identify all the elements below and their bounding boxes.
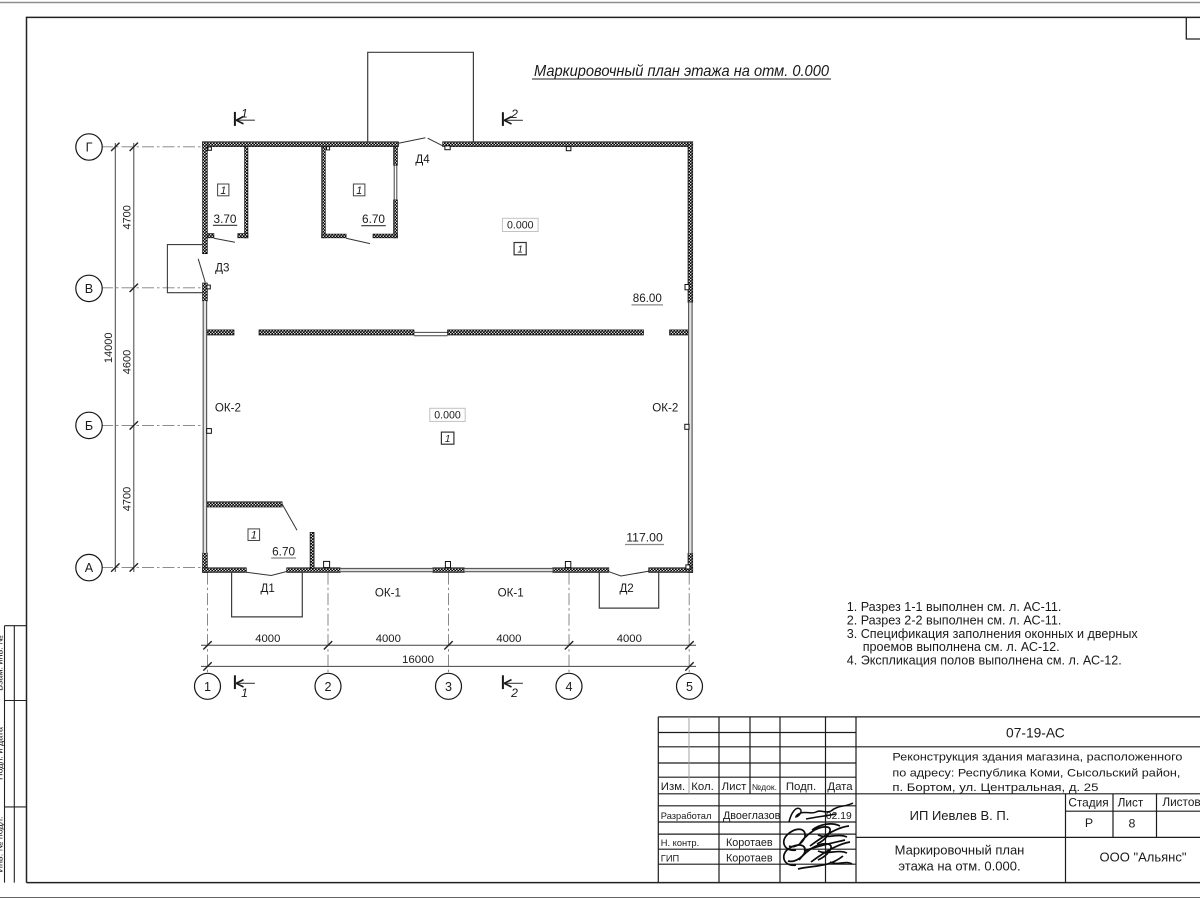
svg-text:2: 2 — [324, 680, 331, 694]
svg-text:ИП Иевлев В. П.: ИП Иевлев В. П. — [910, 808, 1010, 823]
svg-text:1: 1 — [251, 530, 257, 542]
svg-text:Лист: Лист — [1118, 796, 1144, 810]
svg-text:5: 5 — [686, 680, 693, 694]
svg-text:4000: 4000 — [496, 633, 521, 645]
svg-text:4700: 4700 — [121, 487, 133, 511]
svg-text:2: 2 — [510, 686, 518, 700]
svg-text:Взам. инв. №: Взам. инв. № — [0, 635, 4, 691]
svg-text:8: 8 — [1129, 816, 1136, 830]
svg-text:Реконструкция здания магазина,: Реконструкция здания магазина, расположе… — [892, 751, 1182, 763]
svg-text:1: 1 — [517, 245, 523, 256]
svg-text:86.00: 86.00 — [633, 291, 662, 305]
svg-text:Коротаев: Коротаев — [726, 837, 773, 849]
svg-text:Инв. № подл.: Инв. № подл. — [0, 816, 4, 872]
svg-text:1: 1 — [220, 185, 226, 197]
svg-text:16000: 16000 — [402, 654, 434, 666]
svg-text:4000: 4000 — [617, 633, 642, 645]
svg-text:3: 3 — [445, 680, 452, 694]
svg-text:ОК-1: ОК-1 — [498, 586, 524, 599]
svg-text:14000: 14000 — [103, 333, 115, 364]
svg-text:этажа на отм. 0.000.: этажа на отм. 0.000. — [898, 859, 1020, 874]
svg-text:ОК-1: ОК-1 — [375, 586, 401, 599]
svg-text:Лист: Лист — [722, 781, 748, 793]
svg-text:А: А — [85, 561, 94, 575]
svg-text:6.70: 6.70 — [272, 545, 295, 559]
svg-text:Кол.: Кол. — [691, 781, 714, 793]
svg-text:1: 1 — [204, 680, 211, 694]
svg-text:4000: 4000 — [255, 633, 280, 645]
svg-text:ОК-2: ОК-2 — [652, 402, 678, 415]
svg-text:2. Разрез 2-2 выполнен см. л.: 2. Разрез 2-2 выполнен см. л. АС-11. — [847, 614, 1062, 628]
svg-text:07-19-АС: 07-19-АС — [1006, 725, 1065, 740]
svg-text:ООО "Альянс": ООО "Альянс" — [1100, 850, 1187, 865]
svg-text:Стадия: Стадия — [1068, 796, 1108, 810]
svg-text:4700: 4700 — [121, 205, 133, 229]
svg-text:Разработал: Разработал — [661, 811, 712, 821]
svg-text:0.000: 0.000 — [507, 220, 534, 232]
svg-text:№док.: №док. — [752, 782, 777, 792]
svg-text:4: 4 — [565, 680, 572, 694]
svg-text:Д1: Д1 — [261, 582, 275, 595]
svg-text:Листов: Листов — [1162, 795, 1200, 809]
svg-text:2: 2 — [510, 107, 518, 121]
svg-text:4000: 4000 — [376, 633, 401, 645]
svg-text:1: 1 — [445, 434, 451, 445]
svg-text:п. Бортом, ул. Центральная, д.: п. Бортом, ул. Центральная, д. 25 — [892, 782, 1098, 794]
svg-text:по адресу: Республика Коми, Сы: по адресу: Республика Коми, Сысольский р… — [892, 767, 1180, 779]
svg-text:Б: Б — [85, 419, 93, 433]
svg-text:Г: Г — [86, 141, 93, 155]
svg-text:Д3: Д3 — [215, 261, 229, 274]
svg-text:Подп.: Подп. — [786, 781, 816, 793]
svg-text:4. Экспликация полов выполнена: 4. Экспликация полов выполнена см. л. АС… — [847, 654, 1122, 668]
svg-text:117.00: 117.00 — [626, 531, 663, 545]
svg-text:проемов выполнена см. л. АС-12: проемов выполнена см. л. АС-12. — [863, 640, 1060, 654]
svg-text:1: 1 — [241, 107, 248, 121]
svg-text:6.70: 6.70 — [362, 212, 385, 226]
svg-text:Д2: Д2 — [619, 582, 633, 595]
svg-text:Маркировочный план этажа на от: Маркировочный план этажа на отм. 0.000 — [534, 63, 829, 80]
svg-text:3.70: 3.70 — [214, 212, 237, 226]
svg-text:02.19: 02.19 — [826, 811, 852, 822]
svg-text:Н. контр.: Н. контр. — [661, 838, 699, 848]
svg-text:ОК-2: ОК-2 — [215, 402, 241, 415]
svg-text:Подп. и дата: Подп. и дата — [0, 727, 4, 780]
svg-text:Двоеглазов: Двоеглазов — [723, 810, 781, 822]
svg-text:0.000: 0.000 — [434, 410, 461, 422]
svg-text:ГИП: ГИП — [661, 854, 679, 864]
svg-text:Дата: Дата — [827, 781, 853, 793]
svg-text:1. Разрез 1-1 выполнен см. л.: 1. Разрез 1-1 выполнен см. л. АС-11. — [847, 600, 1062, 614]
svg-text:В: В — [85, 282, 93, 296]
svg-text:Маркировочный план: Маркировочный план — [895, 843, 1025, 858]
svg-text:Д4: Д4 — [415, 153, 430, 166]
svg-text:1: 1 — [241, 686, 248, 700]
svg-text:Коротаев: Коротаев — [726, 853, 773, 865]
svg-text:1: 1 — [356, 185, 362, 197]
svg-text:4600: 4600 — [121, 350, 133, 374]
svg-text:Р: Р — [1085, 816, 1093, 830]
svg-text:Изм.: Изм. — [661, 781, 685, 793]
svg-text:3. Спецификация заполнения око: 3. Спецификация заполнения оконных и две… — [847, 627, 1139, 641]
